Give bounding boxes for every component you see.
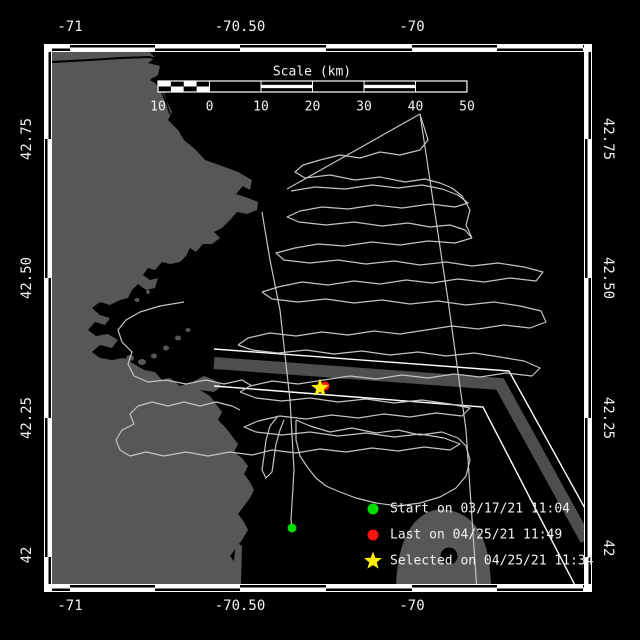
axis-tick-bottom: -70	[399, 598, 424, 614]
axis-tick-right: 42.25	[600, 397, 616, 439]
axis-tick-top: -70.50	[215, 19, 266, 35]
scale-tick-label: 0	[206, 100, 214, 115]
axis-tick-top: -70	[399, 19, 424, 35]
scale-bar	[158, 81, 467, 92]
scale-tick-label: 10	[253, 100, 269, 115]
legend-label: Last on 04/25/21 11:49	[390, 528, 562, 543]
scale-tick-label: 20	[305, 100, 321, 115]
map-canvas	[0, 0, 640, 640]
axis-tick-left: 42.25	[19, 397, 35, 439]
start-marker	[288, 524, 297, 533]
axis-tick-right: 42.50	[600, 257, 616, 299]
axis-tick-left: 42.75	[19, 118, 35, 160]
legend-label: Selected on 04/25/21 11:34	[390, 554, 594, 569]
scale-tick-label: 10	[150, 100, 166, 115]
axis-tick-bottom: -71	[57, 598, 82, 614]
legend-circle-marker	[368, 530, 379, 541]
axis-tick-left: 42.50	[19, 257, 35, 299]
axis-tick-right: 42.75	[600, 118, 616, 160]
axis-tick-bottom: -70.50	[215, 598, 266, 614]
legend-circle-marker	[368, 504, 379, 515]
axis-tick-left: 42	[19, 547, 35, 564]
scale-tick-label: 30	[356, 100, 372, 115]
tracking-map-screen: Scale (km) -71-70.50-70-71-70.50-7042.75…	[0, 0, 640, 640]
axis-tick-top: -71	[57, 19, 82, 35]
legend-label: Start on 03/17/21 11:04	[390, 502, 570, 517]
scale-bar-title: Scale (km)	[273, 65, 351, 80]
scale-tick-label: 40	[408, 100, 424, 115]
scale-tick-label: 50	[459, 100, 475, 115]
axis-tick-right: 42	[600, 540, 616, 557]
